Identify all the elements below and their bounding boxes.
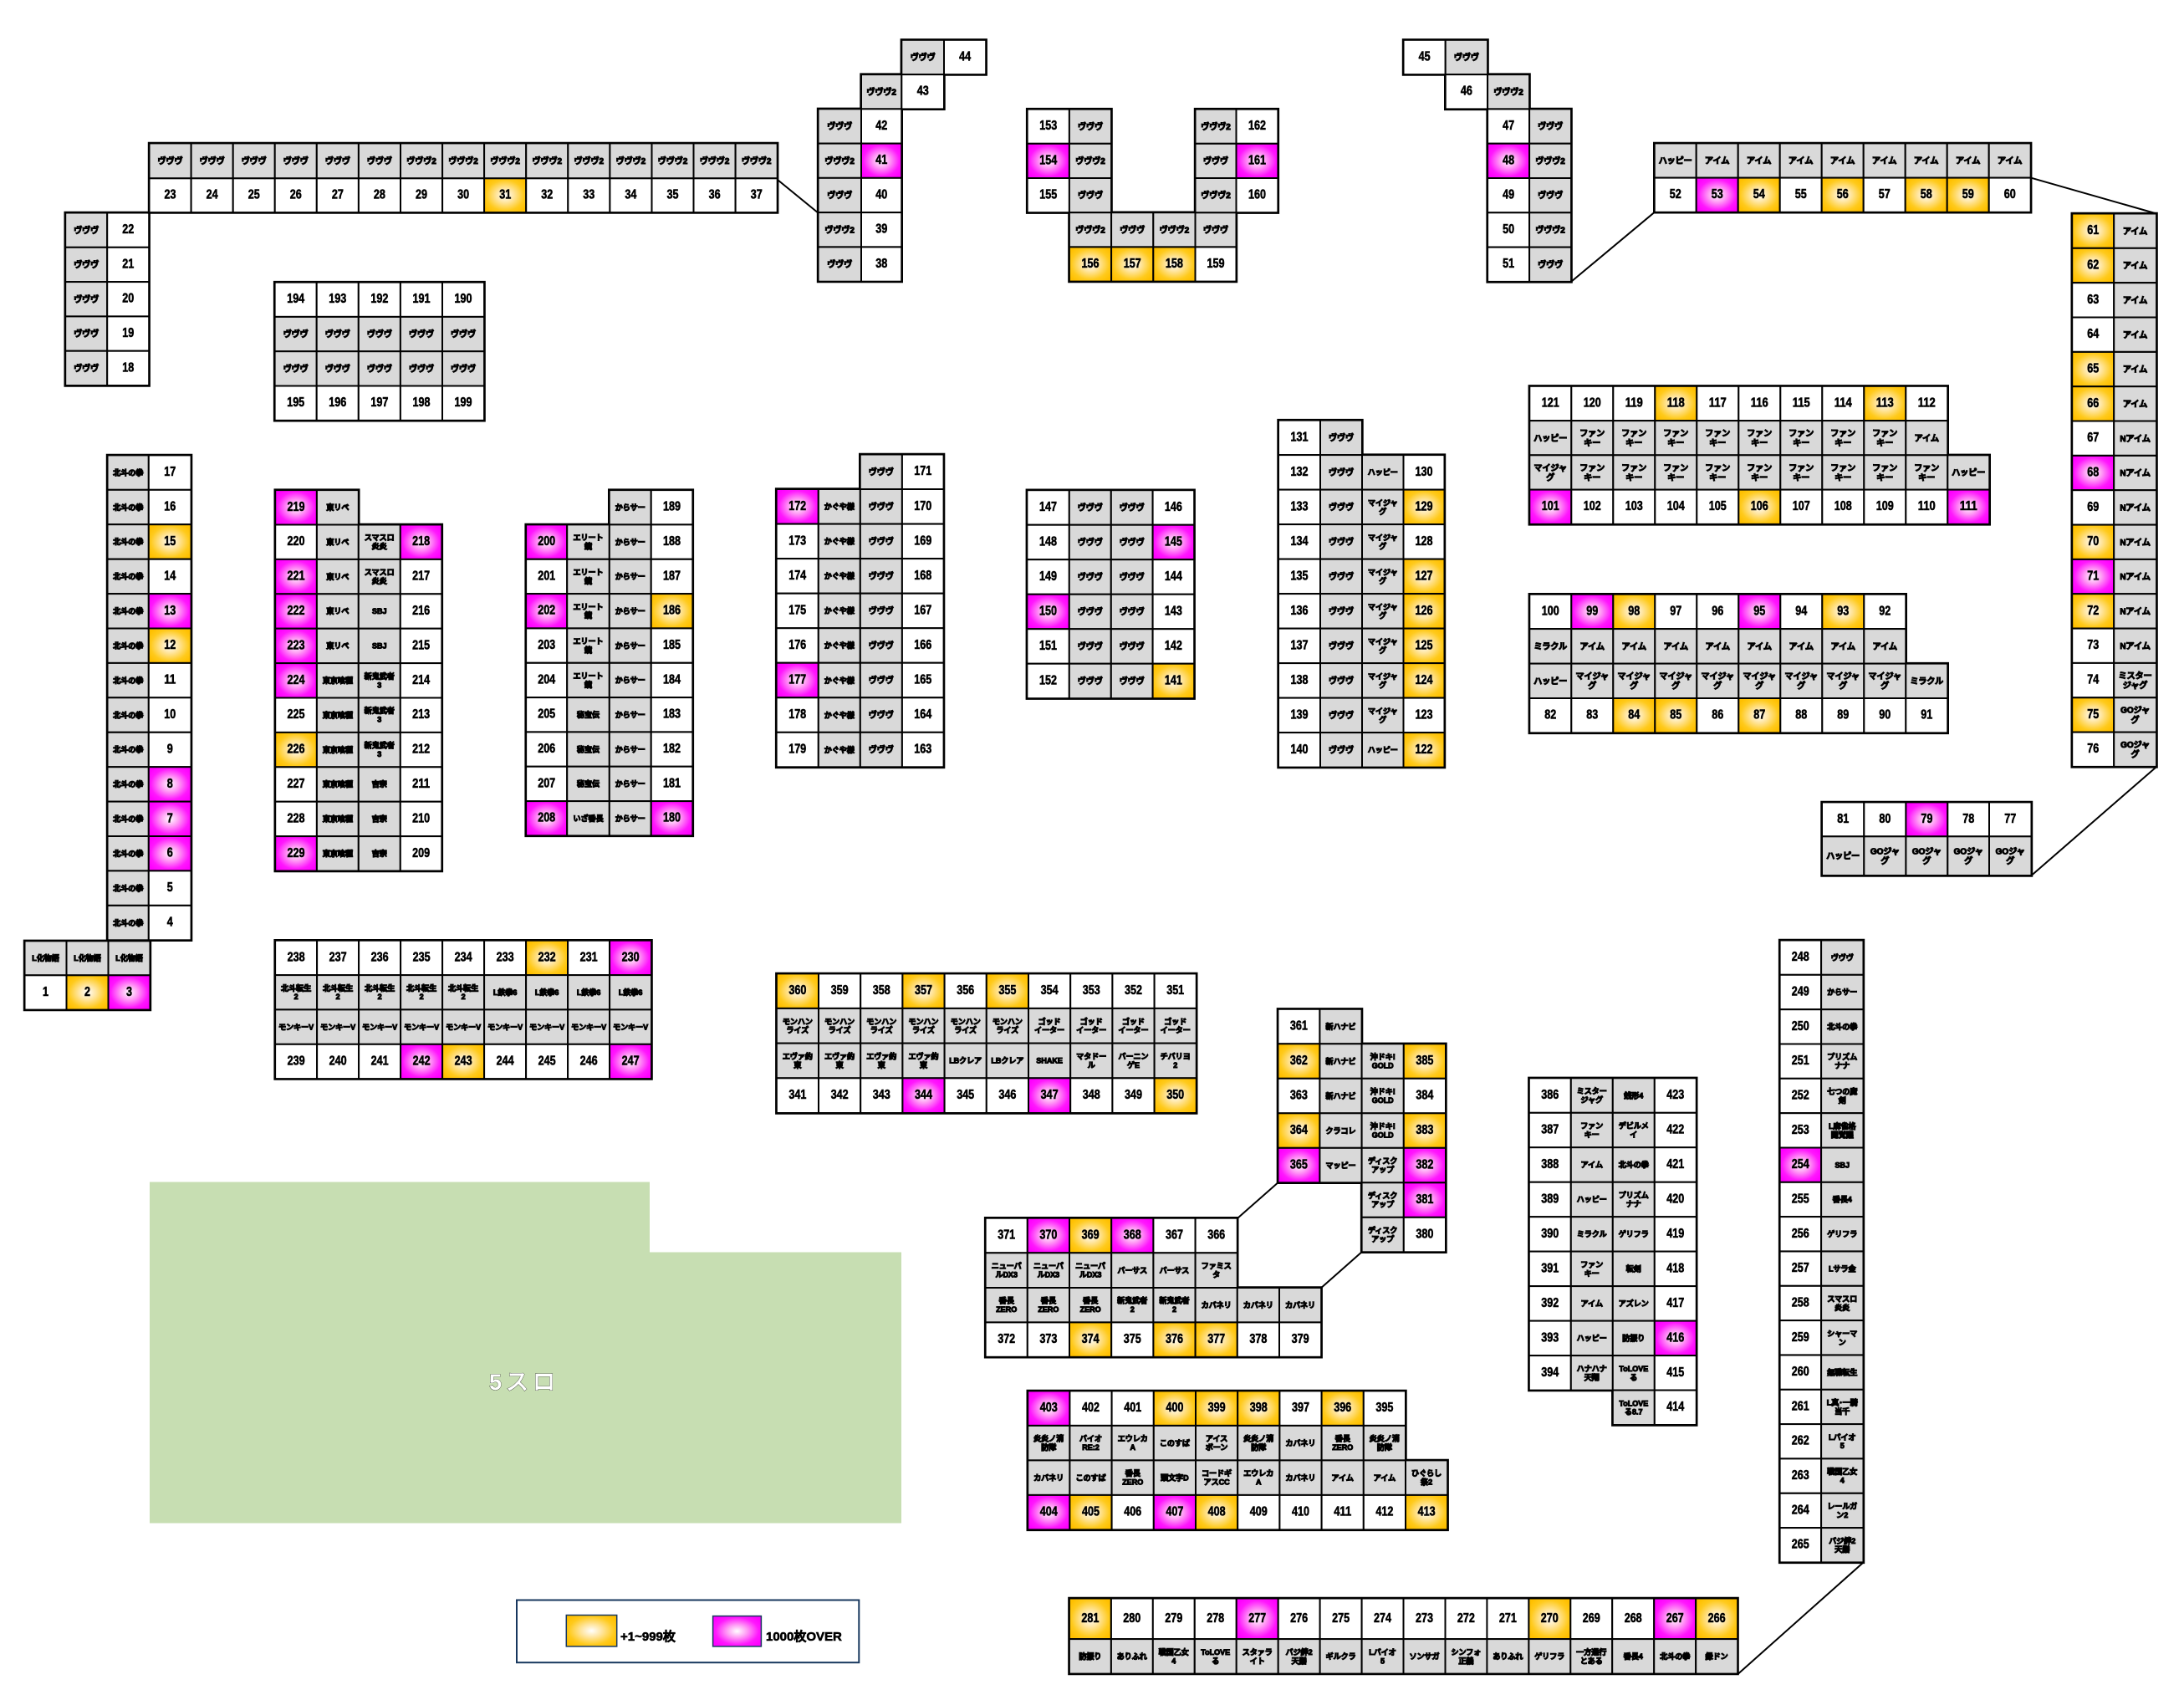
svg-text:ヴヴヴ: ヴヴヴ [869, 501, 894, 512]
svg-text:スマスロ: スマスロ [365, 569, 395, 577]
svg-text:136: 136 [1291, 604, 1309, 618]
svg-text:ナナ: ナナ [1834, 1062, 1850, 1070]
svg-text:7: 7 [167, 811, 173, 825]
svg-text:214: 214 [412, 673, 430, 687]
svg-text:当千: 当千 [1834, 1406, 1850, 1416]
svg-text:139: 139 [1291, 707, 1309, 722]
svg-text:266: 266 [1708, 1611, 1726, 1626]
svg-text:ファン: ファン [1663, 463, 1688, 473]
svg-text:エリート: エリート [573, 568, 603, 576]
svg-text:番長: 番長 [1082, 1296, 1099, 1305]
svg-text:210: 210 [412, 811, 430, 825]
svg-text:5: 5 [1380, 1657, 1385, 1665]
svg-text:128: 128 [1416, 534, 1433, 549]
svg-text:348: 348 [1083, 1088, 1100, 1102]
svg-text:ヴヴヴ: ヴヴヴ [869, 675, 894, 686]
svg-text:アイム: アイム [1664, 642, 1688, 652]
svg-text:ヴヴヴ: ヴヴヴ [1078, 572, 1103, 583]
svg-text:北斗の拳: 北斗の拳 [113, 849, 144, 858]
svg-text:ファン: ファン [1579, 463, 1605, 473]
svg-text:キー: キー [1584, 1269, 1600, 1278]
svg-text:373: 373 [1039, 1332, 1057, 1346]
svg-text:28: 28 [374, 188, 385, 202]
svg-text:炎炎ノ消: 炎炎ノ消 [1370, 1434, 1400, 1443]
svg-text:29: 29 [416, 188, 427, 202]
svg-text:61: 61 [2087, 223, 2099, 237]
svg-text:L化物語: L化物語 [32, 953, 59, 962]
svg-text:138: 138 [1291, 673, 1309, 687]
svg-text:からサー: からサー [615, 814, 646, 823]
svg-text:秘宝伝: 秘宝伝 [577, 744, 600, 753]
svg-text:156: 156 [1082, 257, 1100, 271]
svg-text:247: 247 [622, 1054, 640, 1068]
svg-text:51: 51 [1503, 257, 1514, 271]
svg-text:ニューパ: ニューパ [1033, 1261, 1064, 1270]
svg-text:113: 113 [1876, 396, 1894, 410]
svg-text:213: 213 [412, 707, 430, 722]
svg-text:253: 253 [1792, 1123, 1809, 1137]
svg-text:235: 235 [413, 950, 431, 964]
svg-text:カバネリ: カバネリ [1243, 1301, 1273, 1309]
svg-text:マイジャ: マイジャ [1368, 637, 1398, 646]
svg-text:2: 2 [1130, 1305, 1135, 1314]
svg-text:かぐや様: かぐや様 [824, 537, 855, 546]
svg-text:224: 224 [288, 673, 305, 687]
svg-text:241: 241 [371, 1054, 389, 1068]
svg-text:379: 379 [1292, 1332, 1309, 1346]
svg-text:164: 164 [914, 707, 931, 722]
svg-text:3: 3 [377, 750, 381, 758]
svg-text:275: 275 [1332, 1611, 1350, 1626]
svg-text:126: 126 [1416, 604, 1433, 618]
svg-text:ヴヴヴ2: ヴヴヴ2 [1075, 224, 1105, 235]
svg-text:北斗の拳: 北斗の拳 [1619, 1160, 1650, 1169]
svg-text:ファン: ファン [1580, 1260, 1603, 1269]
svg-text:364: 364 [1290, 1123, 1308, 1137]
svg-text:沖ドキ!: 沖ドキ! [1370, 1052, 1396, 1061]
svg-text:アイス: アイス [1206, 1435, 1227, 1443]
svg-text:423: 423 [1666, 1088, 1684, 1102]
svg-text:83: 83 [1586, 708, 1598, 722]
svg-text:260: 260 [1792, 1365, 1809, 1379]
svg-text:モンキーV: モンキーV [278, 1023, 314, 1031]
svg-text:371: 371 [998, 1228, 1015, 1243]
svg-text:8: 8 [167, 777, 173, 791]
svg-text:炎炎: 炎炎 [1834, 1304, 1850, 1312]
svg-text:220: 220 [288, 534, 305, 549]
svg-text:1000枚OVER: 1000枚OVER [766, 1629, 842, 1644]
svg-text:396: 396 [1334, 1401, 1351, 1415]
svg-text:Nアイム: Nアイム [2120, 538, 2151, 548]
svg-text:5スロ: 5スロ [489, 1370, 559, 1395]
svg-text:ヴヴヴ: ヴヴヴ [1538, 259, 1563, 270]
svg-text:402: 402 [1082, 1401, 1100, 1415]
svg-text:北斗転生: 北斗転生 [323, 983, 353, 993]
svg-text:北斗の拳: 北斗の拳 [113, 814, 144, 824]
svg-text:カバネリ: カバネリ [1033, 1473, 1064, 1482]
svg-text:ディスク: ディスク [1368, 1156, 1397, 1166]
svg-text:北斗の拳: 北斗の拳 [113, 606, 144, 615]
svg-text:バーサス: バーサス [1160, 1266, 1190, 1274]
svg-text:ジャグ: ジャグ [2123, 680, 2148, 691]
svg-text:番長: 番長 [1125, 1468, 1141, 1478]
svg-text:81: 81 [1837, 812, 1849, 826]
svg-text:アイム: アイム [2123, 330, 2147, 340]
svg-text:219: 219 [288, 500, 305, 514]
svg-text:177: 177 [788, 673, 806, 687]
svg-text:ZERO: ZERO [1332, 1443, 1353, 1452]
svg-text:ヴヴヴ2: ヴヴヴ2 [866, 86, 896, 97]
svg-text:ゴッド: ゴッド [1122, 1017, 1145, 1026]
svg-text:170: 170 [914, 499, 931, 513]
svg-text:GOジャ: GOジャ [2120, 706, 2150, 716]
svg-text:バイオ: バイオ [1079, 1435, 1102, 1443]
svg-text:ヴヴヴ2: ヴヴヴ2 [1075, 156, 1105, 166]
svg-text:238: 238 [288, 950, 305, 964]
svg-text:ゲリフラ: ゲリフラ [1619, 1229, 1649, 1238]
svg-text:37: 37 [751, 188, 763, 202]
svg-text:ZERO: ZERO [996, 1305, 1017, 1314]
svg-text:141: 141 [1165, 673, 1182, 687]
svg-text:天翔: 天翔 [1584, 1372, 1600, 1381]
svg-text:グ: グ [1379, 576, 1386, 585]
svg-text:スマスロ: スマスロ [365, 533, 395, 542]
svg-text:391: 391 [1541, 1261, 1559, 1275]
svg-text:北斗の拳: 北斗の拳 [113, 779, 144, 789]
svg-text:鏡: 鏡 [584, 646, 592, 655]
svg-text:84: 84 [1628, 708, 1640, 722]
svg-text:193: 193 [329, 292, 346, 306]
svg-text:正義: 正義 [1458, 1656, 1473, 1665]
svg-text:390: 390 [1541, 1227, 1559, 1241]
svg-text:炎炎ノ消: 炎炎ノ消 [1033, 1434, 1064, 1443]
svg-text:106: 106 [1751, 499, 1768, 513]
svg-text:ファン: ファン [1789, 463, 1814, 473]
svg-text:417: 417 [1666, 1296, 1684, 1310]
svg-text:番長4: 番長4 [1623, 1652, 1643, 1661]
svg-text:404: 404 [1040, 1505, 1058, 1519]
svg-text:110: 110 [1918, 499, 1936, 513]
svg-text:ヴヴヴ2: ヴヴヴ2 [1535, 156, 1565, 166]
svg-text:モンキーV: モンキーV [320, 1023, 355, 1031]
svg-text:121: 121 [1542, 396, 1559, 410]
svg-text:392: 392 [1541, 1296, 1559, 1310]
svg-text:マイジャ: マイジャ [1869, 671, 1902, 682]
svg-text:北斗の拳: 北斗の拳 [113, 641, 144, 651]
svg-text:135: 135 [1291, 569, 1309, 583]
svg-text:グ: グ [1880, 855, 1889, 866]
svg-text:98: 98 [1628, 604, 1640, 618]
svg-text:アイム: アイム [2123, 296, 2147, 306]
svg-text:グ: グ [1379, 610, 1386, 620]
svg-text:99: 99 [1586, 604, 1598, 618]
svg-text:モンキーV: モンキーV [529, 1023, 564, 1031]
svg-text:からサー: からサー [1827, 988, 1857, 997]
svg-text:LBクレア: LBクレア [991, 1057, 1023, 1065]
svg-text:ヴヴヴ2: ヴヴヴ2 [700, 156, 730, 166]
svg-text:380: 380 [1416, 1228, 1433, 1242]
svg-text:22: 22 [122, 222, 134, 237]
svg-text:ヴヴヴ: ヴヴヴ [1120, 224, 1145, 235]
svg-text:77: 77 [2004, 812, 2016, 826]
svg-text:ファミス: ファミス [1202, 1262, 1232, 1270]
svg-text:179: 179 [788, 743, 806, 757]
svg-text:ひぐらし: ひぐらし [1411, 1469, 1442, 1478]
svg-text:マタドー: マタドー [1076, 1052, 1106, 1061]
svg-text:279: 279 [1165, 1611, 1182, 1626]
svg-text:デビルメ: デビルメ [1619, 1121, 1649, 1131]
svg-text:130: 130 [1416, 465, 1433, 479]
svg-text:鏡: 鏡 [584, 680, 592, 689]
svg-text:アイム: アイム [1622, 642, 1646, 652]
svg-text:352: 352 [1125, 983, 1142, 998]
svg-text:SBJ: SBJ [372, 642, 387, 651]
svg-text:ZERO: ZERO [1122, 1478, 1143, 1487]
svg-text:キー: キー [1834, 472, 1851, 482]
svg-text:ファン: ファン [1747, 429, 1772, 439]
svg-text:番長: 番長 [998, 1296, 1015, 1305]
svg-text:132: 132 [1291, 465, 1309, 479]
svg-text:ヴヴヴ: ヴヴヴ [827, 121, 852, 132]
svg-text:27: 27 [332, 188, 344, 202]
svg-text:L化物語: L化物語 [115, 953, 143, 962]
svg-text:ZERO: ZERO [1080, 1305, 1101, 1314]
svg-text:アイム: アイム [2123, 261, 2147, 271]
svg-text:新鬼武者: 新鬼武者 [365, 706, 395, 715]
svg-text:グ: グ [1379, 646, 1386, 655]
svg-text:ディスク: ディスク [1368, 1226, 1397, 1235]
svg-text:モンキーV: モンキーV [446, 1023, 481, 1031]
svg-text:194: 194 [287, 292, 304, 306]
svg-text:222: 222 [288, 604, 305, 618]
svg-text:ヴヴヴ: ヴヴヴ [827, 259, 852, 270]
svg-text:ヴヴヴ2: ヴヴヴ2 [1160, 224, 1190, 235]
svg-text:ヴヴヴ: ヴヴヴ [1078, 676, 1103, 687]
svg-text:ギルクラ: ギルクラ [1326, 1652, 1356, 1661]
svg-text:沖ドキ!: 沖ドキ! [1370, 1121, 1396, 1131]
svg-text:366: 366 [1207, 1228, 1225, 1243]
svg-text:LBクレア: LBクレア [949, 1057, 982, 1065]
svg-text:385: 385 [1416, 1054, 1433, 1068]
svg-text:62: 62 [2087, 258, 2099, 273]
svg-text:215: 215 [412, 638, 430, 652]
svg-text:21: 21 [122, 257, 134, 271]
svg-text:159: 159 [1207, 257, 1225, 271]
svg-text:69: 69 [2087, 500, 2099, 514]
svg-text:1: 1 [43, 985, 48, 999]
svg-text:ヴヴヴ: ヴヴヴ [1329, 710, 1354, 721]
svg-text:3: 3 [377, 681, 381, 689]
svg-text:407: 407 [1166, 1505, 1183, 1519]
svg-text:ファン: ファン [1914, 463, 1939, 473]
svg-text:A: A [1130, 1443, 1135, 1452]
svg-text:無職転生: 無職転生 [1827, 1367, 1857, 1376]
svg-text:かぐや様: かぐや様 [824, 502, 855, 511]
svg-text:ハッピー: ハッピー [1368, 467, 1398, 477]
svg-text:一方通行: 一方通行 [1576, 1647, 1606, 1657]
svg-text:ライズ: ライズ [870, 1025, 893, 1034]
svg-text:370: 370 [1039, 1228, 1057, 1243]
svg-text:409: 409 [1250, 1505, 1268, 1519]
svg-text:378: 378 [1249, 1332, 1267, 1346]
svg-text:カバネリ: カバネリ [1285, 1301, 1315, 1309]
svg-text:103: 103 [1625, 499, 1643, 513]
svg-text:242: 242 [413, 1054, 431, 1068]
svg-text:230: 230 [622, 950, 640, 964]
svg-text:67: 67 [2087, 431, 2099, 445]
svg-text:273: 273 [1416, 1611, 1433, 1626]
svg-text:246: 246 [580, 1054, 598, 1068]
svg-text:74: 74 [2087, 673, 2099, 687]
svg-text:ゴッド: ゴッド [1164, 1017, 1186, 1026]
svg-text:天膳: 天膳 [1834, 1544, 1850, 1554]
svg-text:アイム: アイム [1789, 156, 1813, 166]
svg-text:ありふれ: ありふれ [1117, 1652, 1147, 1661]
svg-text:ディスク: ディスク [1368, 1191, 1397, 1200]
svg-text:109: 109 [1876, 499, 1894, 513]
svg-text:76: 76 [2087, 742, 2099, 756]
svg-text:190: 190 [455, 292, 472, 306]
svg-text:東リベ: 東リベ [326, 641, 349, 651]
svg-text:ゲリフラ: ゲリフラ [1534, 1652, 1564, 1661]
svg-text:368: 368 [1124, 1228, 1141, 1243]
svg-text:グ: グ [2131, 714, 2140, 725]
svg-text:グ: グ [1797, 681, 1805, 692]
svg-text:アイム: アイム [2123, 400, 2147, 410]
svg-text:ヴヴヴ2: ヴヴヴ2 [824, 224, 855, 235]
svg-text:北斗の拳: 北斗の拳 [1827, 1022, 1858, 1031]
svg-text:キー: キー [1834, 438, 1851, 448]
svg-text:10: 10 [164, 707, 176, 722]
svg-text:365: 365 [1290, 1158, 1308, 1172]
svg-text:グ: グ [1964, 855, 1972, 866]
svg-text:闘覚醒: 闘覚醒 [1831, 1130, 1854, 1139]
svg-text:防隊: 防隊 [1041, 1442, 1057, 1452]
svg-text:173: 173 [788, 533, 806, 548]
svg-text:モンキーV: モンキーV [613, 1023, 648, 1031]
svg-text:キー: キー [1584, 1131, 1600, 1139]
svg-text:367: 367 [1166, 1228, 1183, 1243]
svg-text:53: 53 [1712, 187, 1723, 202]
svg-text:82: 82 [1544, 708, 1556, 722]
svg-text:137: 137 [1291, 638, 1309, 652]
svg-text:エヴァ約: エヴァ約 [783, 1052, 813, 1061]
svg-text:38: 38 [875, 257, 887, 271]
svg-text:ヴヴヴ: ヴヴヴ [451, 329, 476, 339]
svg-text:東リベ: 東リベ [326, 606, 349, 615]
svg-text:ミラクル: ミラクル [1533, 642, 1567, 652]
svg-text:アップ: アップ [1371, 1234, 1395, 1243]
svg-text:GOジャ: GOジャ [1954, 847, 1983, 857]
svg-text:ヴヴヴ: ヴヴヴ [367, 156, 392, 166]
svg-text:153: 153 [1039, 119, 1057, 133]
svg-text:142: 142 [1165, 639, 1182, 653]
svg-text:79: 79 [1921, 812, 1932, 826]
svg-text:ヴヴヴ: ヴヴヴ [1078, 503, 1103, 513]
svg-text:34: 34 [625, 188, 636, 202]
svg-text:ライズ: ライズ [912, 1025, 935, 1034]
svg-text:アイム: アイム [1914, 156, 1938, 166]
svg-text:新鬼武者: 新鬼武者 [1159, 1296, 1189, 1305]
svg-text:エリート: エリート [573, 637, 603, 646]
svg-text:グ: グ [1588, 681, 1596, 692]
svg-text:GOLD: GOLD [1372, 1062, 1394, 1070]
svg-text:256: 256 [1792, 1227, 1809, 1241]
svg-text:ファン: ファン [1789, 429, 1814, 439]
svg-text:L麻雀格: L麻雀格 [1829, 1121, 1856, 1131]
svg-text:ニューパ: ニューパ [1075, 1261, 1105, 1270]
svg-text:100: 100 [1542, 604, 1559, 618]
svg-text:+1~999枚: +1~999枚 [620, 1629, 676, 1644]
svg-text:204: 204 [538, 672, 555, 687]
svg-text:398: 398 [1250, 1401, 1268, 1415]
svg-text:60: 60 [2004, 187, 2016, 202]
svg-text:マイジャ: マイジャ [1660, 671, 1693, 682]
svg-text:186: 186 [663, 604, 681, 618]
svg-text:421: 421 [1666, 1157, 1684, 1172]
svg-text:384: 384 [1416, 1089, 1433, 1103]
svg-text:149: 149 [1039, 569, 1057, 584]
svg-text:89: 89 [1837, 708, 1849, 722]
svg-text:ヴヴヴ2: ヴヴヴ2 [616, 156, 646, 166]
svg-text:123: 123 [1416, 707, 1433, 722]
svg-text:ル: ル [1088, 1061, 1095, 1070]
svg-text:4: 4 [167, 916, 173, 930]
svg-text:秘宝伝: 秘宝伝 [577, 779, 600, 789]
svg-text:SBJ: SBJ [372, 607, 387, 615]
svg-text:70: 70 [2087, 534, 2099, 549]
svg-text:ヴヴヴ: ヴヴヴ [74, 363, 99, 374]
svg-text:マッピー: マッピー [1325, 1161, 1355, 1170]
svg-text:グ: グ [1379, 507, 1386, 516]
svg-text:393: 393 [1541, 1330, 1559, 1345]
svg-text:420: 420 [1666, 1192, 1684, 1206]
svg-text:からサー: からサー [615, 503, 646, 512]
svg-text:ヴヴヴ2: ヴヴヴ2 [1201, 121, 1231, 132]
svg-text:399: 399 [1208, 1401, 1226, 1415]
svg-text:北斗の拳: 北斗の拳 [113, 572, 144, 581]
svg-text:388: 388 [1541, 1157, 1559, 1172]
svg-text:束: 束 [878, 1060, 886, 1070]
svg-text:アイム: アイム [1915, 433, 1939, 443]
svg-text:145: 145 [1165, 534, 1182, 549]
svg-text:ToLOVE: ToLOVE [1201, 1648, 1230, 1657]
svg-text:43: 43 [917, 84, 929, 99]
svg-text:258: 258 [1792, 1295, 1809, 1309]
svg-text:146: 146 [1165, 500, 1182, 514]
svg-text:チバリヨ: チバリヨ [1161, 1053, 1191, 1061]
svg-text:192: 192 [370, 292, 388, 306]
svg-text:42: 42 [875, 119, 887, 133]
svg-text:239: 239 [288, 1054, 305, 1068]
svg-text:ヴヴヴ: ヴヴヴ [283, 364, 309, 375]
svg-text:キー: キー [1918, 472, 1935, 482]
svg-text:ヴヴヴ: ヴヴヴ [869, 571, 894, 582]
svg-text:259: 259 [1792, 1330, 1809, 1345]
svg-text:鏡: 鏡 [584, 610, 592, 620]
svg-text:番長: 番長 [1334, 1434, 1351, 1443]
svg-text:東リベ: 東リベ [326, 537, 349, 546]
svg-text:からサー: からサー [615, 711, 646, 719]
svg-text:マイジャ: マイジャ [1785, 671, 1819, 682]
svg-text:バジ絆2: バジ絆2 [1286, 1647, 1313, 1657]
svg-text:番長4: 番長4 [1832, 1195, 1852, 1204]
svg-text:26: 26 [290, 188, 302, 202]
svg-text:174: 174 [788, 569, 806, 583]
svg-text:防隊: 防隊 [1377, 1442, 1393, 1452]
svg-text:からサー: からサー [615, 745, 646, 753]
svg-text:72: 72 [2087, 604, 2099, 618]
